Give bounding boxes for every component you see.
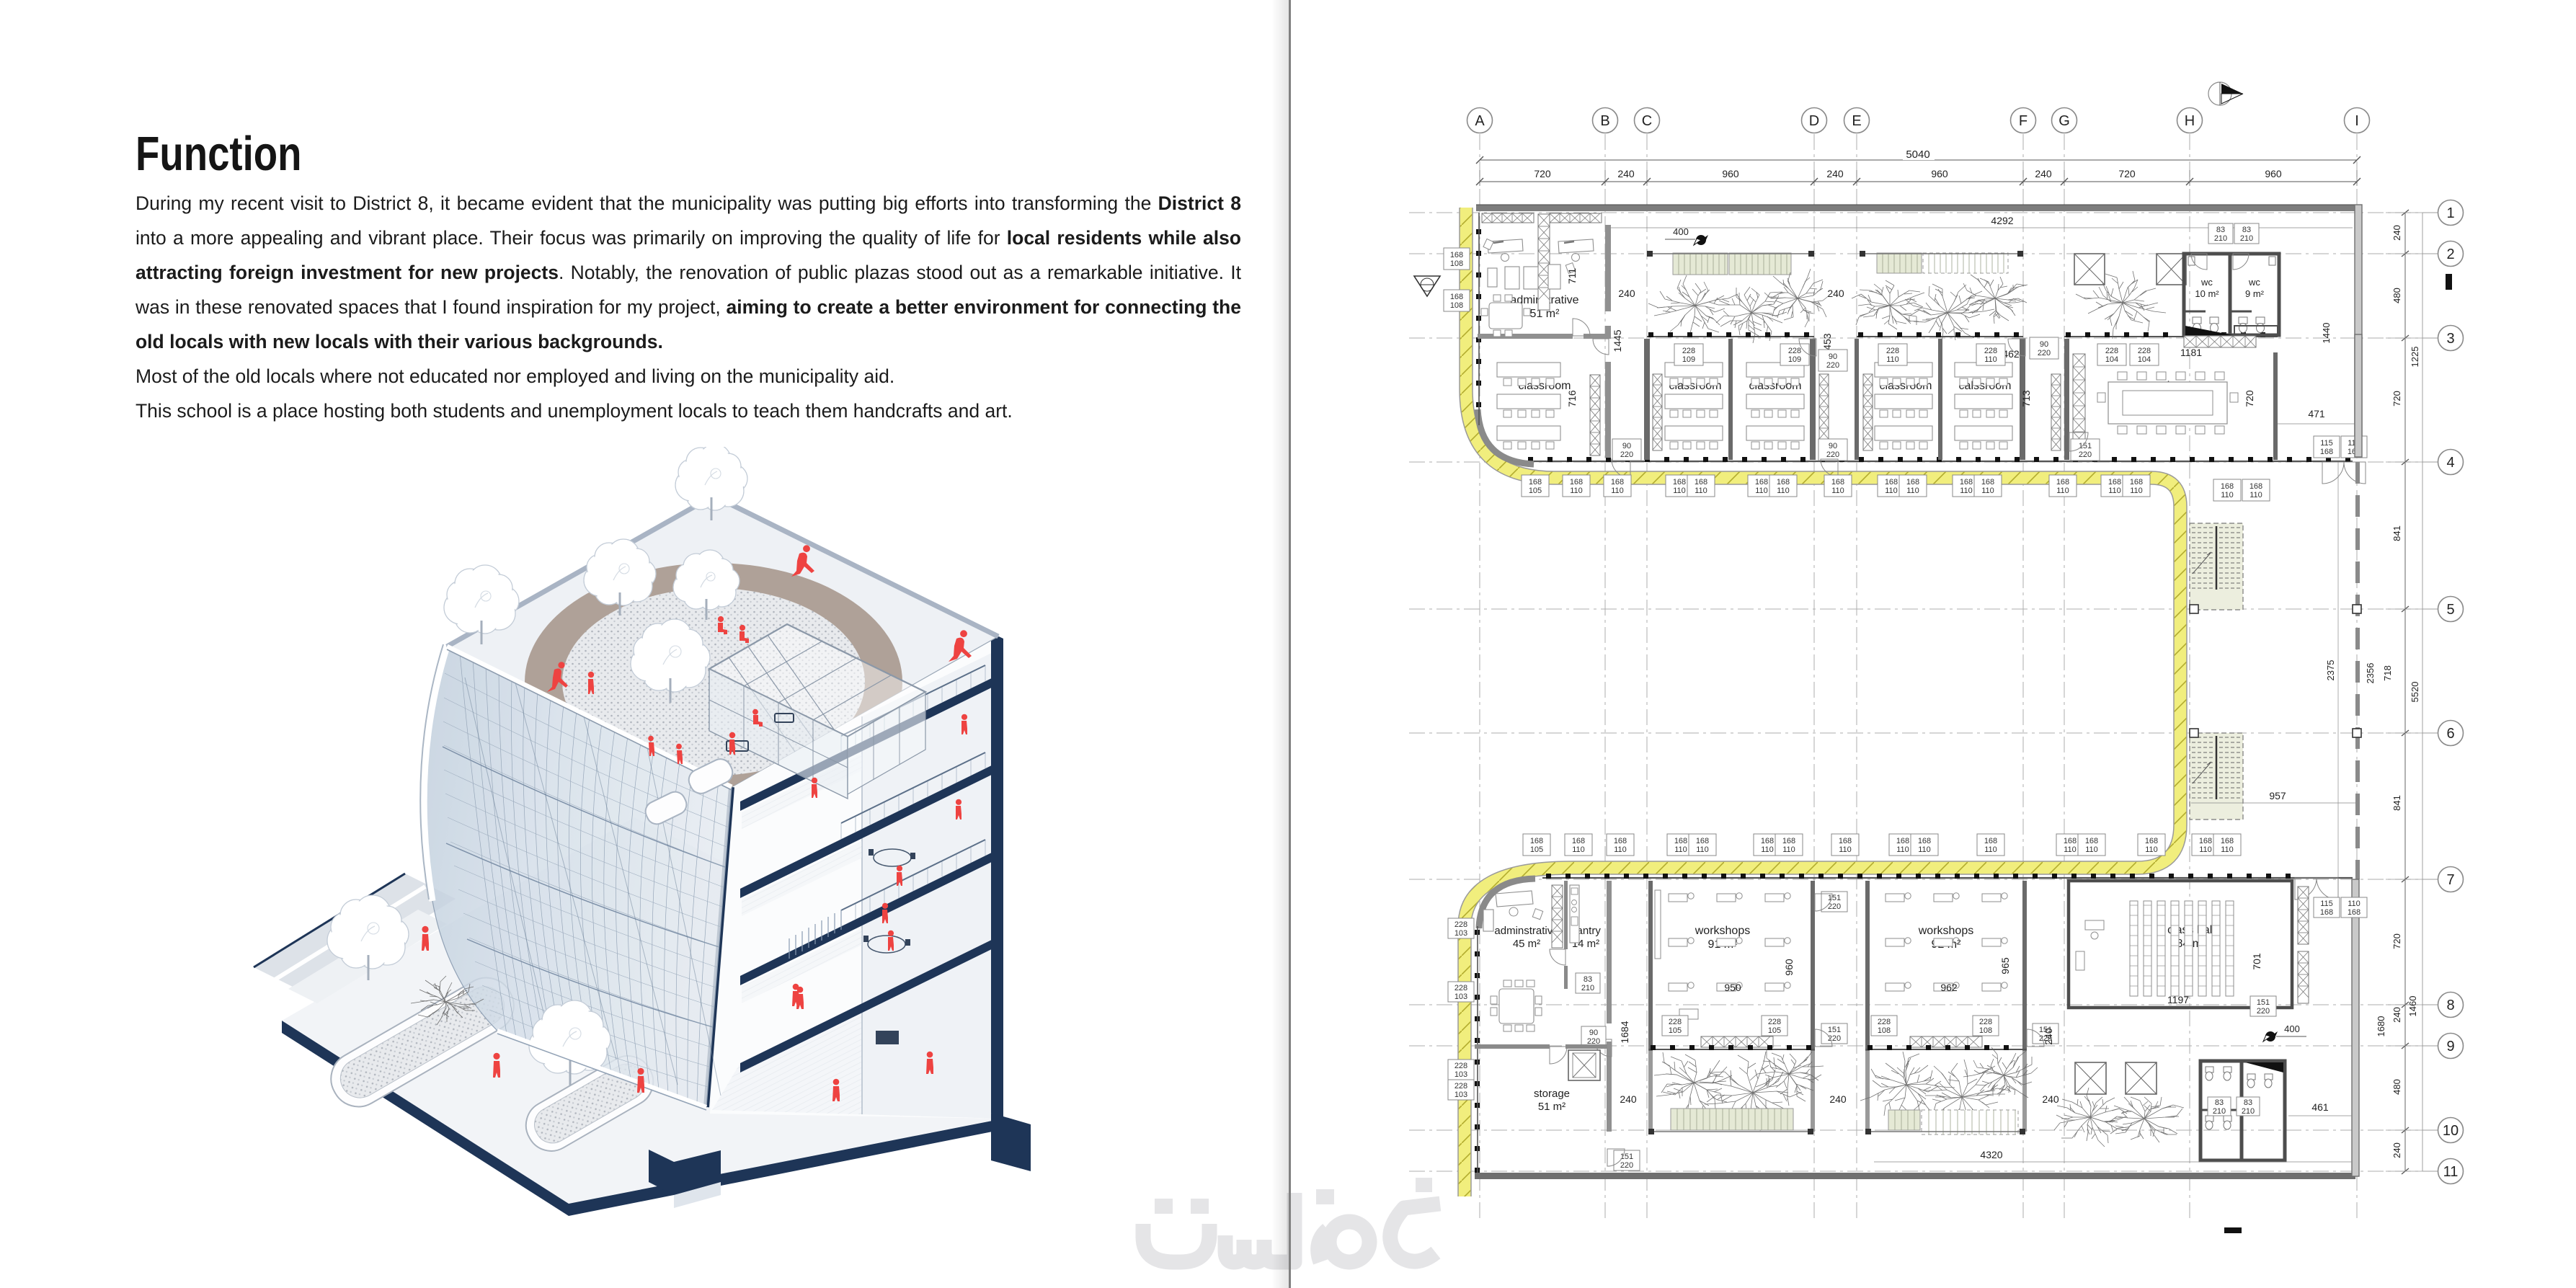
svg-text:110: 110 — [2056, 487, 2069, 495]
svg-text:168: 168 — [2221, 837, 2234, 845]
svg-text:105: 105 — [1529, 487, 1542, 495]
svg-text:110: 110 — [1761, 845, 1774, 854]
svg-text:220: 220 — [1828, 902, 1841, 911]
svg-text:F: F — [2019, 113, 2028, 129]
svg-text:168: 168 — [1981, 478, 1994, 487]
svg-text:1181: 1181 — [2180, 347, 2202, 358]
svg-text:240: 240 — [1829, 1093, 1847, 1105]
svg-text:83: 83 — [1584, 975, 1592, 984]
svg-text:168: 168 — [1782, 837, 1795, 845]
svg-text:1440: 1440 — [2321, 323, 2332, 344]
svg-text:D: D — [1809, 113, 1819, 129]
svg-text:950: 950 — [1724, 982, 1741, 993]
svg-text:1684: 1684 — [1619, 1021, 1630, 1043]
svg-text:151: 151 — [1828, 1026, 1841, 1034]
svg-text:103: 103 — [1454, 1091, 1467, 1099]
svg-text:168: 168 — [2320, 448, 2333, 456]
svg-text:168: 168 — [2249, 482, 2262, 491]
svg-text:168: 168 — [1572, 837, 1585, 845]
svg-text:I: I — [2355, 113, 2359, 129]
svg-text:110: 110 — [1782, 845, 1795, 854]
svg-text:5040: 5040 — [1906, 148, 1929, 161]
svg-text:210: 210 — [2214, 234, 2227, 243]
svg-text:960: 960 — [1722, 168, 1739, 179]
svg-text:1445: 1445 — [1612, 329, 1623, 352]
svg-text:168: 168 — [2056, 478, 2069, 487]
svg-text:716: 716 — [1566, 390, 1578, 407]
svg-text:168: 168 — [1918, 837, 1931, 845]
svg-text:720: 720 — [2391, 391, 2402, 407]
svg-text:960: 960 — [1931, 168, 1948, 179]
svg-text:83: 83 — [2242, 226, 2251, 234]
svg-text:110: 110 — [1918, 845, 1931, 854]
svg-text:168: 168 — [1777, 478, 1790, 487]
svg-text:110: 110 — [2199, 845, 2212, 854]
svg-text:3: 3 — [2446, 331, 2454, 347]
svg-text:110: 110 — [1695, 487, 1707, 495]
svg-text:115: 115 — [2320, 439, 2333, 448]
svg-text:110: 110 — [1614, 845, 1627, 854]
svg-text:228: 228 — [1682, 347, 1695, 355]
svg-text:108: 108 — [1979, 1026, 1992, 1035]
svg-text:168: 168 — [1529, 478, 1542, 487]
svg-text:wc: wc — [2248, 277, 2260, 288]
svg-text:110: 110 — [2064, 845, 2077, 854]
svg-text:220: 220 — [1620, 450, 1633, 459]
svg-text:110: 110 — [1674, 845, 1687, 854]
svg-text:adminstrative: adminstrative — [1494, 925, 1558, 937]
svg-text:B: B — [1600, 113, 1609, 129]
svg-text:168: 168 — [1885, 478, 1898, 487]
svg-text:110: 110 — [1984, 355, 1997, 364]
svg-text:240: 240 — [2035, 168, 2052, 179]
svg-text:841: 841 — [2391, 795, 2402, 811]
svg-text:110: 110 — [1777, 487, 1790, 495]
svg-text:168: 168 — [2320, 908, 2333, 917]
svg-text:228: 228 — [1788, 347, 1801, 355]
svg-text:1: 1 — [2446, 205, 2454, 221]
svg-text:1225: 1225 — [2410, 347, 2420, 368]
svg-text:720: 720 — [1534, 168, 1551, 179]
svg-text:108: 108 — [1450, 259, 1463, 268]
svg-text:2375: 2375 — [2325, 660, 2336, 681]
svg-text:C: C — [1642, 113, 1652, 129]
svg-text:228: 228 — [1454, 984, 1467, 992]
svg-text:110: 110 — [1572, 845, 1585, 854]
svg-text:105: 105 — [1530, 845, 1543, 854]
svg-text:720: 720 — [2391, 933, 2402, 949]
svg-text:110: 110 — [1570, 487, 1583, 495]
svg-text:110: 110 — [1839, 845, 1852, 854]
svg-text:51 m²: 51 m² — [1538, 1101, 1565, 1113]
svg-text:210: 210 — [2242, 1107, 2255, 1116]
svg-text:168: 168 — [1755, 478, 1768, 487]
svg-text:220: 220 — [2038, 349, 2051, 357]
svg-text:110: 110 — [2249, 491, 2262, 499]
svg-text:G: G — [2058, 113, 2070, 129]
svg-text:240: 240 — [2043, 1028, 2054, 1045]
svg-text:110: 110 — [1885, 487, 1898, 495]
svg-text:110: 110 — [1673, 487, 1686, 495]
svg-text:168: 168 — [1673, 478, 1686, 487]
svg-text:E: E — [1852, 113, 1861, 129]
svg-text:168: 168 — [1984, 837, 1997, 845]
svg-text:workshops: workshops — [1695, 925, 1750, 937]
svg-text:110: 110 — [1896, 845, 1909, 854]
svg-text:6: 6 — [2446, 726, 2454, 742]
svg-text:960: 960 — [1783, 959, 1795, 976]
svg-text:7: 7 — [2446, 872, 2454, 888]
svg-text:168: 168 — [1839, 837, 1852, 845]
svg-text:711: 711 — [1566, 268, 1578, 285]
svg-text:90: 90 — [1622, 442, 1631, 450]
svg-text:108: 108 — [1878, 1026, 1891, 1035]
svg-text:109: 109 — [1788, 355, 1801, 364]
svg-text:720: 720 — [2244, 390, 2255, 407]
svg-text:103: 103 — [1454, 992, 1467, 1001]
svg-text:168: 168 — [1896, 837, 1909, 845]
svg-text:957: 957 — [2269, 790, 2286, 801]
svg-text:168: 168 — [1674, 837, 1687, 845]
svg-text:1460: 1460 — [2407, 996, 2418, 1017]
svg-text:228: 228 — [1979, 1018, 1992, 1026]
svg-text:240: 240 — [2391, 1007, 2402, 1023]
svg-text:11: 11 — [2443, 1164, 2459, 1180]
svg-text:110: 110 — [1696, 845, 1709, 854]
svg-text:45 m²: 45 m² — [1513, 938, 1540, 950]
svg-text:8: 8 — [2446, 998, 2454, 1013]
svg-text:228: 228 — [1454, 1062, 1467, 1070]
svg-text:168: 168 — [1831, 478, 1844, 487]
svg-text:workshops: workshops — [1918, 925, 1973, 937]
svg-text:960: 960 — [2265, 168, 2282, 179]
svg-text:240: 240 — [1617, 168, 1635, 179]
svg-text:168: 168 — [1611, 478, 1624, 487]
svg-text:110: 110 — [2221, 845, 2234, 854]
svg-text:220: 220 — [1828, 1034, 1841, 1043]
svg-text:168: 168 — [1570, 478, 1583, 487]
svg-text:228: 228 — [1768, 1018, 1781, 1026]
svg-text:103: 103 — [1454, 1070, 1467, 1079]
svg-text:228: 228 — [1878, 1018, 1891, 1026]
svg-text:104: 104 — [2138, 355, 2151, 364]
svg-text:168: 168 — [1695, 478, 1707, 487]
svg-text:228: 228 — [1984, 347, 1997, 355]
svg-text:720: 720 — [2118, 168, 2136, 179]
svg-text:9 m²: 9 m² — [2245, 288, 2265, 299]
svg-text:168: 168 — [2199, 837, 2212, 845]
svg-text:90: 90 — [1829, 442, 1837, 450]
svg-text:105: 105 — [1669, 1026, 1682, 1035]
svg-text:2356: 2356 — [2365, 663, 2376, 684]
svg-text:108: 108 — [1450, 301, 1463, 310]
svg-text:168: 168 — [2085, 837, 2098, 845]
svg-text:240: 240 — [2042, 1093, 2059, 1105]
svg-text:4: 4 — [2446, 455, 2454, 471]
svg-text:210: 210 — [2240, 234, 2253, 243]
svg-text:109: 109 — [1682, 355, 1695, 364]
svg-text:168: 168 — [1450, 251, 1463, 259]
svg-text:713: 713 — [2020, 390, 2032, 407]
svg-text:718: 718 — [2382, 665, 2393, 681]
svg-text:110: 110 — [1906, 487, 1919, 495]
svg-text:90: 90 — [1829, 352, 1837, 361]
svg-text:400: 400 — [2284, 1023, 2300, 1034]
svg-text:1197: 1197 — [2167, 994, 2189, 1005]
svg-text:168: 168 — [2064, 837, 2077, 845]
svg-text:110: 110 — [1981, 487, 1994, 495]
svg-text:168: 168 — [1906, 478, 1919, 487]
svg-text:83: 83 — [2215, 1098, 2224, 1107]
svg-text:168: 168 — [2348, 908, 2360, 917]
svg-text:210: 210 — [1581, 984, 1594, 992]
svg-text:240: 240 — [1618, 288, 1635, 299]
svg-text:110: 110 — [1886, 355, 1899, 364]
svg-text:151: 151 — [1620, 1152, 1633, 1161]
svg-text:151: 151 — [1828, 894, 1841, 902]
svg-text:228: 228 — [1886, 347, 1899, 355]
svg-text:110: 110 — [1611, 487, 1624, 495]
svg-text:83: 83 — [2244, 1098, 2252, 1107]
svg-text:wc: wc — [2200, 277, 2213, 288]
svg-text:480: 480 — [2391, 288, 2402, 303]
svg-text:110: 110 — [2085, 845, 2098, 854]
svg-text:228: 228 — [2138, 347, 2151, 355]
svg-text:10 m²: 10 m² — [2195, 288, 2219, 299]
svg-text:1680: 1680 — [2376, 1016, 2386, 1037]
svg-text:110: 110 — [2348, 900, 2360, 908]
svg-text:2: 2 — [2446, 247, 2454, 262]
svg-text:168: 168 — [2108, 478, 2121, 487]
svg-text:480: 480 — [2391, 1079, 2402, 1095]
svg-text:240: 240 — [1827, 288, 1844, 299]
svg-text:5520: 5520 — [2410, 682, 2420, 703]
svg-text:228: 228 — [1454, 920, 1467, 929]
svg-text:110: 110 — [1755, 487, 1768, 495]
svg-text:90: 90 — [1589, 1029, 1598, 1037]
svg-text:168: 168 — [1614, 837, 1627, 845]
svg-text:228: 228 — [1669, 1018, 1682, 1026]
svg-text:5: 5 — [2446, 602, 2454, 618]
svg-text:240: 240 — [1620, 1093, 1637, 1105]
svg-text:701: 701 — [2251, 953, 2262, 970]
svg-text:A: A — [1475, 113, 1485, 129]
svg-text:168: 168 — [2130, 478, 2143, 487]
svg-text:83: 83 — [2216, 226, 2225, 234]
svg-text:110: 110 — [1831, 487, 1844, 495]
svg-text:110: 110 — [1984, 845, 1997, 854]
svg-text:965: 965 — [1999, 957, 2011, 974]
svg-text:105: 105 — [1768, 1026, 1781, 1035]
svg-text:151: 151 — [2257, 998, 2270, 1007]
svg-text:H: H — [2185, 113, 2195, 129]
svg-text:90: 90 — [2040, 340, 2048, 349]
svg-text:110: 110 — [2108, 487, 2121, 495]
svg-text:storage: storage — [1534, 1088, 1570, 1100]
svg-text:168: 168 — [1761, 837, 1774, 845]
svg-text:220: 220 — [1826, 361, 1839, 370]
svg-text:228: 228 — [2105, 347, 2118, 355]
svg-text:168: 168 — [2145, 837, 2158, 845]
svg-text:400: 400 — [1673, 226, 1689, 237]
svg-text:220: 220 — [2079, 450, 2092, 459]
svg-text:210: 210 — [2213, 1107, 2226, 1116]
svg-text:240: 240 — [2391, 1142, 2402, 1158]
svg-text:168: 168 — [1960, 478, 1973, 487]
svg-text:110: 110 — [2221, 491, 2234, 499]
svg-text:168: 168 — [1450, 293, 1463, 301]
svg-text:220: 220 — [1620, 1161, 1633, 1170]
svg-text:110: 110 — [2145, 845, 2158, 854]
svg-text:841: 841 — [2391, 525, 2402, 541]
svg-text:115: 115 — [2320, 900, 2333, 908]
svg-text:962: 962 — [1940, 982, 1958, 993]
svg-text:110: 110 — [2130, 487, 2143, 495]
svg-text:168: 168 — [2221, 482, 2234, 491]
svg-text:240: 240 — [1826, 168, 1844, 179]
svg-text:4320: 4320 — [1980, 1149, 2002, 1160]
svg-text:4292: 4292 — [1991, 215, 2013, 226]
svg-text:10: 10 — [2443, 1123, 2459, 1139]
svg-text:220: 220 — [1826, 450, 1839, 459]
svg-text:471: 471 — [2308, 408, 2325, 419]
svg-text:461: 461 — [2311, 1101, 2329, 1113]
svg-text:9: 9 — [2446, 1039, 2454, 1054]
svg-text:110: 110 — [1960, 487, 1973, 495]
svg-text:168: 168 — [1530, 837, 1543, 845]
svg-text:240: 240 — [2391, 225, 2402, 241]
svg-text:103: 103 — [1454, 929, 1467, 938]
svg-text:228: 228 — [1454, 1082, 1467, 1091]
svg-text:168: 168 — [1696, 837, 1709, 845]
svg-text:104: 104 — [2105, 355, 2118, 364]
svg-text:220: 220 — [2257, 1007, 2270, 1016]
